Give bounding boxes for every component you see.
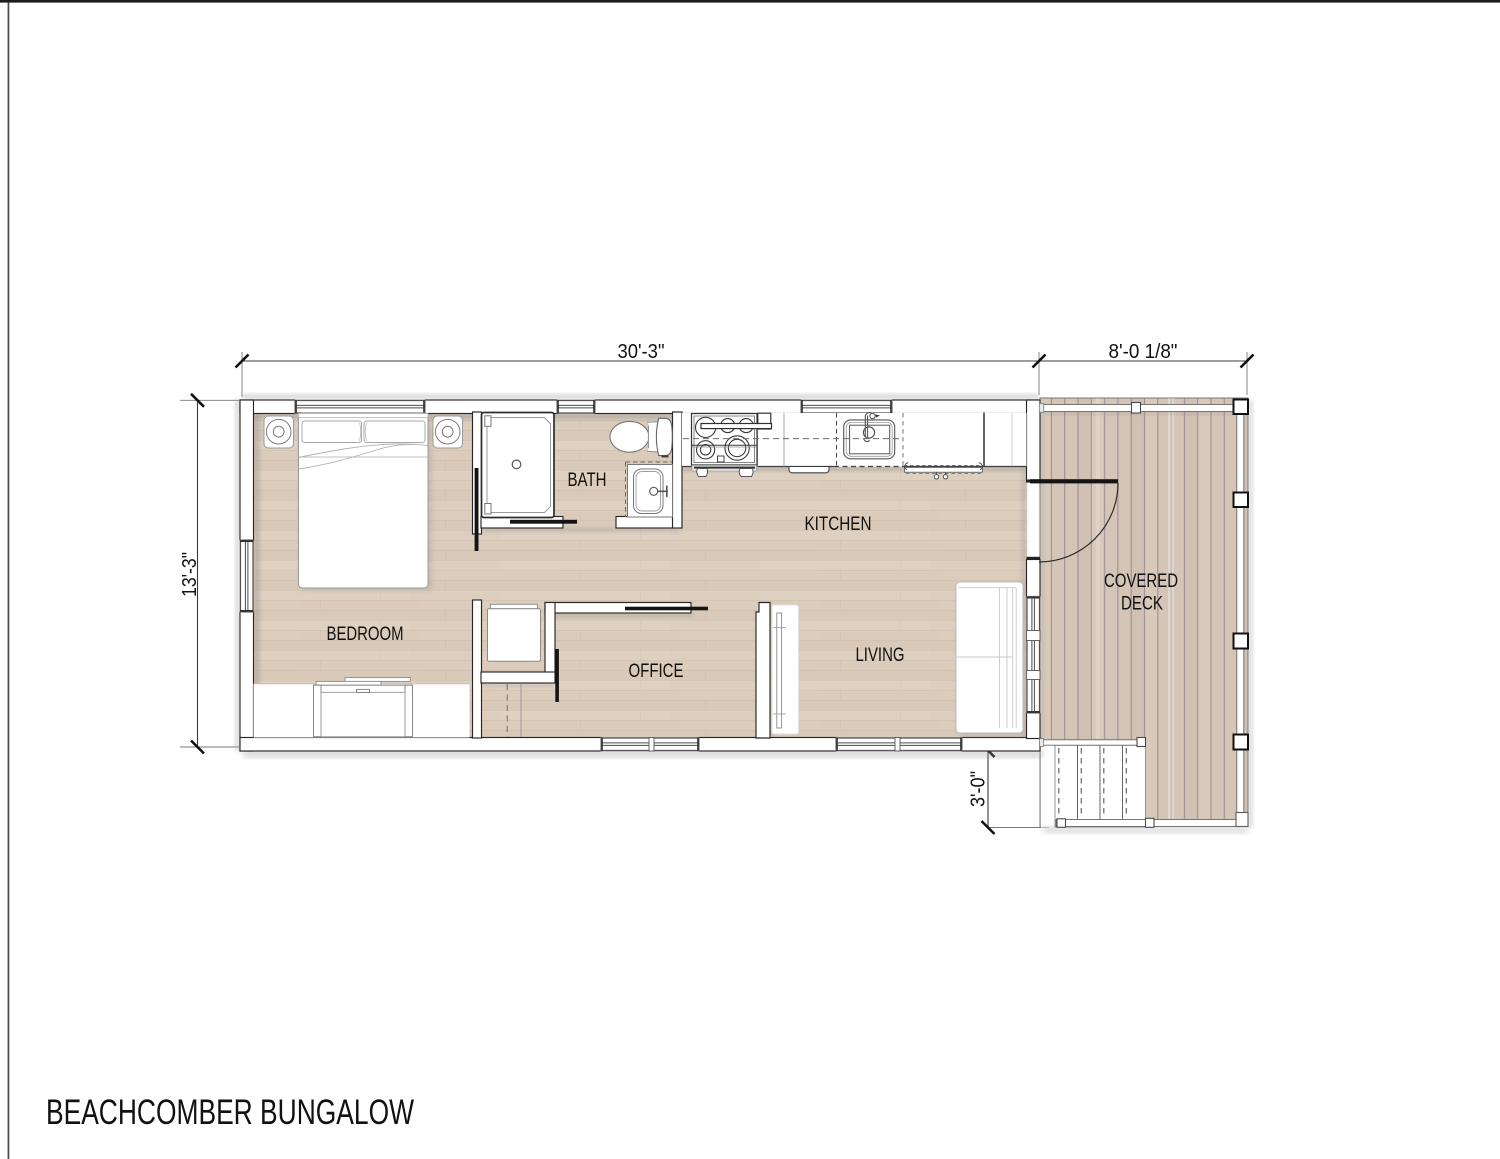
svg-text:BATH: BATH [568,469,607,491]
svg-text:COVERED: COVERED [1104,570,1178,592]
svg-text:3'-0": 3'-0" [968,771,990,807]
svg-text:BEDROOM: BEDROOM [327,623,404,645]
svg-text:LIVING: LIVING [856,644,905,666]
svg-text:30'-3": 30'-3" [618,341,665,363]
svg-text:13'-3": 13'-3" [179,552,201,597]
svg-text:KITCHEN: KITCHEN [805,513,872,535]
svg-text:BEACHCOMBER BUNGALOW: BEACHCOMBER BUNGALOW [46,1093,414,1132]
svg-text:8'-0 1/8": 8'-0 1/8" [1109,341,1178,363]
svg-text:OFFICE: OFFICE [629,660,684,682]
svg-text:DECK: DECK [1121,593,1163,615]
